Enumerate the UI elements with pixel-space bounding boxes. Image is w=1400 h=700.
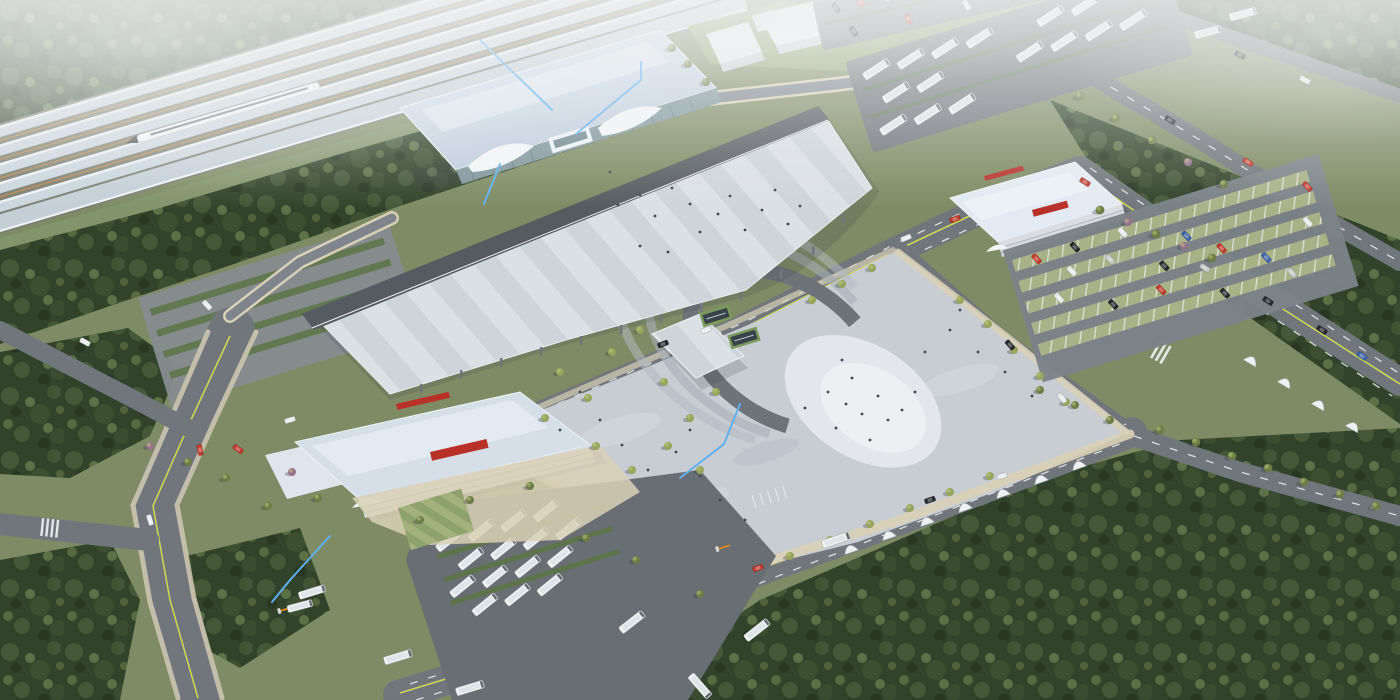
- forest-left-low: [0, 540, 140, 700]
- aerial-render: [0, 0, 1400, 700]
- render-canvas: [0, 0, 1400, 700]
- fog-overlay: [0, 0, 1400, 210]
